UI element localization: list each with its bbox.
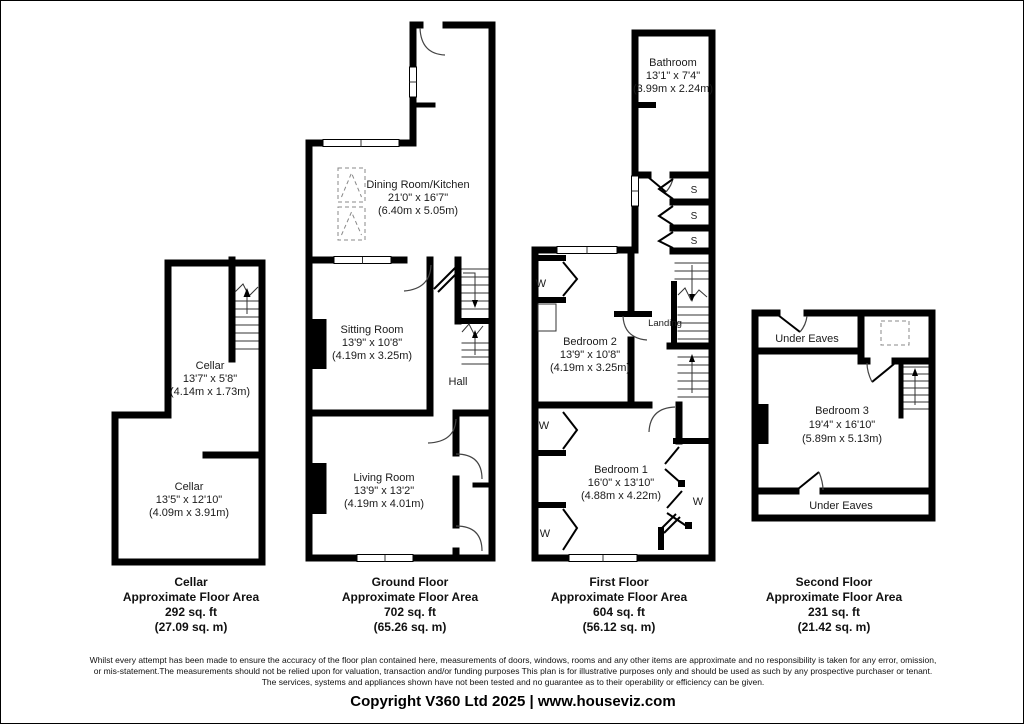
summary-subtitle: Approximate Floor Area bbox=[519, 590, 719, 605]
room-label-under-eaves-bottom: Under Eaves bbox=[809, 500, 873, 512]
door-arc bbox=[456, 454, 482, 479]
summary-area-ft: 231 sq. ft bbox=[734, 605, 934, 620]
bifold-door bbox=[563, 412, 577, 449]
room-label-sitting-name: Sitting Room bbox=[341, 324, 404, 336]
rooflight-symbol bbox=[342, 212, 362, 235]
summary-area-m: (21.42 sq. m) bbox=[734, 620, 934, 635]
room-label-living-name: Living Room bbox=[353, 472, 414, 484]
door-arc bbox=[420, 28, 445, 55]
wardrobe-label: W bbox=[539, 420, 550, 432]
summary-subtitle: Approximate Floor Area bbox=[91, 590, 291, 605]
storage-cupboard-doors bbox=[659, 179, 673, 248]
cellar-floor-plan: Cellar 13'7" x 5'8" (4.14m x 1.73m) Cell… bbox=[115, 260, 262, 562]
disclaimer-line: Whilst every attempt has been made to en… bbox=[1, 655, 1024, 666]
door-leaf bbox=[872, 364, 894, 382]
bifold-door bbox=[563, 509, 577, 550]
bifold-door bbox=[659, 206, 673, 225]
rooflight-symbol bbox=[881, 321, 909, 345]
summary-cellar: Cellar Approximate Floor Area 292 sq. ft… bbox=[91, 575, 291, 635]
room-label-bedroom3-metric: (5.89m x 5.13m) bbox=[802, 433, 882, 445]
summary-area-m: (65.26 sq. m) bbox=[310, 620, 510, 635]
room-label-hall: Hall bbox=[449, 376, 468, 388]
floorplan-page: Cellar 13'7" x 5'8" (4.14m x 1.73m) Cell… bbox=[0, 0, 1024, 724]
room-label-bedroom1-imperial: 16'0" x 13'10" bbox=[588, 477, 655, 489]
summary-subtitle: Approximate Floor Area bbox=[310, 590, 510, 605]
wardrobe-label: W bbox=[693, 496, 704, 508]
room-label-dining-metric: (6.40m x 5.05m) bbox=[378, 205, 458, 217]
stair-treads bbox=[678, 307, 709, 339]
sitting-room-chimney-breast bbox=[313, 319, 327, 369]
room-label-living-metric: (4.19m x 4.01m) bbox=[344, 498, 424, 510]
room-label-bathroom-name: Bathroom bbox=[649, 57, 697, 69]
room-label-cellar-lower-metric: (4.09m x 3.91m) bbox=[149, 507, 229, 519]
disclaimer-line: or mis-statement.The measurements should… bbox=[1, 666, 1024, 677]
summary-title: Ground Floor bbox=[310, 575, 510, 590]
bifold-door bbox=[563, 262, 577, 296]
door-arc bbox=[819, 472, 823, 490]
door-arc bbox=[649, 407, 675, 432]
door-leaf bbox=[778, 315, 800, 332]
storage-label: S bbox=[691, 185, 698, 196]
disclaimer-text: Whilst every attempt has been made to en… bbox=[1, 655, 1024, 688]
storage-label: S bbox=[691, 236, 698, 247]
room-label-cellar-upper-metric: (4.14m x 1.73m) bbox=[170, 386, 250, 398]
first-floor-plan: Bathroom 13'1" x 7'4" (3.99m x 2.24m) S … bbox=[535, 33, 713, 562]
door-arc bbox=[623, 316, 647, 340]
stair-up-arrow-icon bbox=[689, 354, 695, 362]
stair-up-arrow-icon bbox=[244, 288, 251, 297]
door-pivot bbox=[678, 480, 685, 487]
second-floor-plan: Under Eaves Bedroom 3 19'4" x 16'10" (5.… bbox=[752, 313, 933, 518]
room-label-cellar-upper-name: Cellar bbox=[196, 360, 225, 372]
rooflight-symbols bbox=[338, 168, 365, 240]
living-room-chimney-breast bbox=[313, 463, 327, 514]
bifold-door bbox=[659, 232, 673, 248]
wardrobe-label: W bbox=[540, 528, 551, 540]
room-label-under-eaves-top: Under Eaves bbox=[775, 333, 839, 345]
room-label-cellar-upper-imperial: 13'7" x 5'8" bbox=[183, 373, 237, 385]
summary-title: Second Floor bbox=[734, 575, 934, 590]
ground-floor-plan: Dining Room/Kitchen 21'0" x 16'7" (6.40m… bbox=[309, 25, 492, 562]
summary-title: First Floor bbox=[519, 575, 719, 590]
room-label-sitting-imperial: 13'9" x 10'8" bbox=[342, 337, 402, 349]
summary-subtitle: Approximate Floor Area bbox=[734, 590, 934, 605]
room-label-bedroom2-imperial: 13'9" x 10'8" bbox=[560, 349, 620, 361]
summary-area-m: (27.09 sq. m) bbox=[91, 620, 291, 635]
door-leaf bbox=[648, 177, 666, 192]
room-label-bathroom-metric: (3.99m x 2.24m) bbox=[633, 83, 713, 95]
door-pivot bbox=[685, 522, 692, 529]
rooflight-symbol bbox=[342, 173, 362, 197]
room-label-bedroom1-name: Bedroom 1 bbox=[594, 464, 648, 476]
disclaimer-line: The services, systems and appliances sho… bbox=[1, 677, 1024, 688]
summary-area-ft: 604 sq. ft bbox=[519, 605, 719, 620]
bedroom3-chimney-breast bbox=[752, 404, 769, 444]
cupboard-outline bbox=[538, 304, 556, 331]
summary-title: Cellar bbox=[91, 575, 291, 590]
door-arc bbox=[867, 363, 872, 382]
floor-plans-canvas: Cellar 13'7" x 5'8" (4.14m x 1.73m) Cell… bbox=[1, 1, 1024, 569]
room-label-dining-name: Dining Room/Kitchen bbox=[366, 179, 469, 191]
room-label-bedroom1-metric: (4.88m x 4.22m) bbox=[581, 490, 661, 502]
room-label-cellar-lower-name: Cellar bbox=[175, 481, 204, 493]
room-label-living-imperial: 13'9" x 13'2" bbox=[354, 485, 414, 497]
summary-area-ft: 702 sq. ft bbox=[310, 605, 510, 620]
stair-down-arrow-icon bbox=[472, 300, 478, 308]
hall-staircase bbox=[462, 269, 489, 364]
copyright-text: Copyright V360 Ltd 2025 | www.houseviz.c… bbox=[1, 693, 1024, 710]
rooflight-symbol bbox=[338, 207, 365, 240]
room-label-landing: Landing bbox=[648, 318, 682, 329]
storage-label: S bbox=[691, 211, 698, 222]
wardrobe-label: W bbox=[536, 278, 547, 290]
room-label-bedroom2-name: Bedroom 2 bbox=[563, 336, 617, 348]
door-leaf bbox=[798, 472, 819, 489]
room-label-bedroom3-imperial: 19'4" x 16'10" bbox=[809, 419, 876, 431]
door-arc bbox=[428, 419, 456, 443]
summary-area-ft: 292 sq. ft bbox=[91, 605, 291, 620]
summary-area-m: (56.12 sq. m) bbox=[519, 620, 719, 635]
summary-ground-floor: Ground Floor Approximate Floor Area 702 … bbox=[310, 575, 510, 635]
summary-second-floor: Second Floor Approximate Floor Area 231 … bbox=[734, 575, 934, 635]
room-label-bathroom-imperial: 13'1" x 7'4" bbox=[646, 70, 700, 82]
room-label-bedroom3-name: Bedroom 3 bbox=[815, 405, 869, 417]
room-label-dining-imperial: 21'0" x 16'7" bbox=[388, 192, 448, 204]
cellar-staircase bbox=[235, 284, 259, 349]
stair-break-line bbox=[462, 324, 483, 336]
room-label-bedroom2-metric: (4.19m x 3.25m) bbox=[550, 362, 630, 374]
door-arc bbox=[456, 526, 482, 551]
door-arc bbox=[800, 316, 807, 332]
summary-first-floor: First Floor Approximate Floor Area 604 s… bbox=[519, 575, 719, 635]
room-label-cellar-lower-imperial: 13'5" x 12'10" bbox=[156, 494, 223, 506]
stair-up-arrow-icon bbox=[912, 368, 918, 376]
first-floor-staircase bbox=[675, 263, 709, 397]
second-floor-staircase bbox=[904, 367, 929, 409]
stair-treads bbox=[678, 357, 709, 397]
room-label-sitting-metric: (4.19m x 3.25m) bbox=[332, 350, 412, 362]
